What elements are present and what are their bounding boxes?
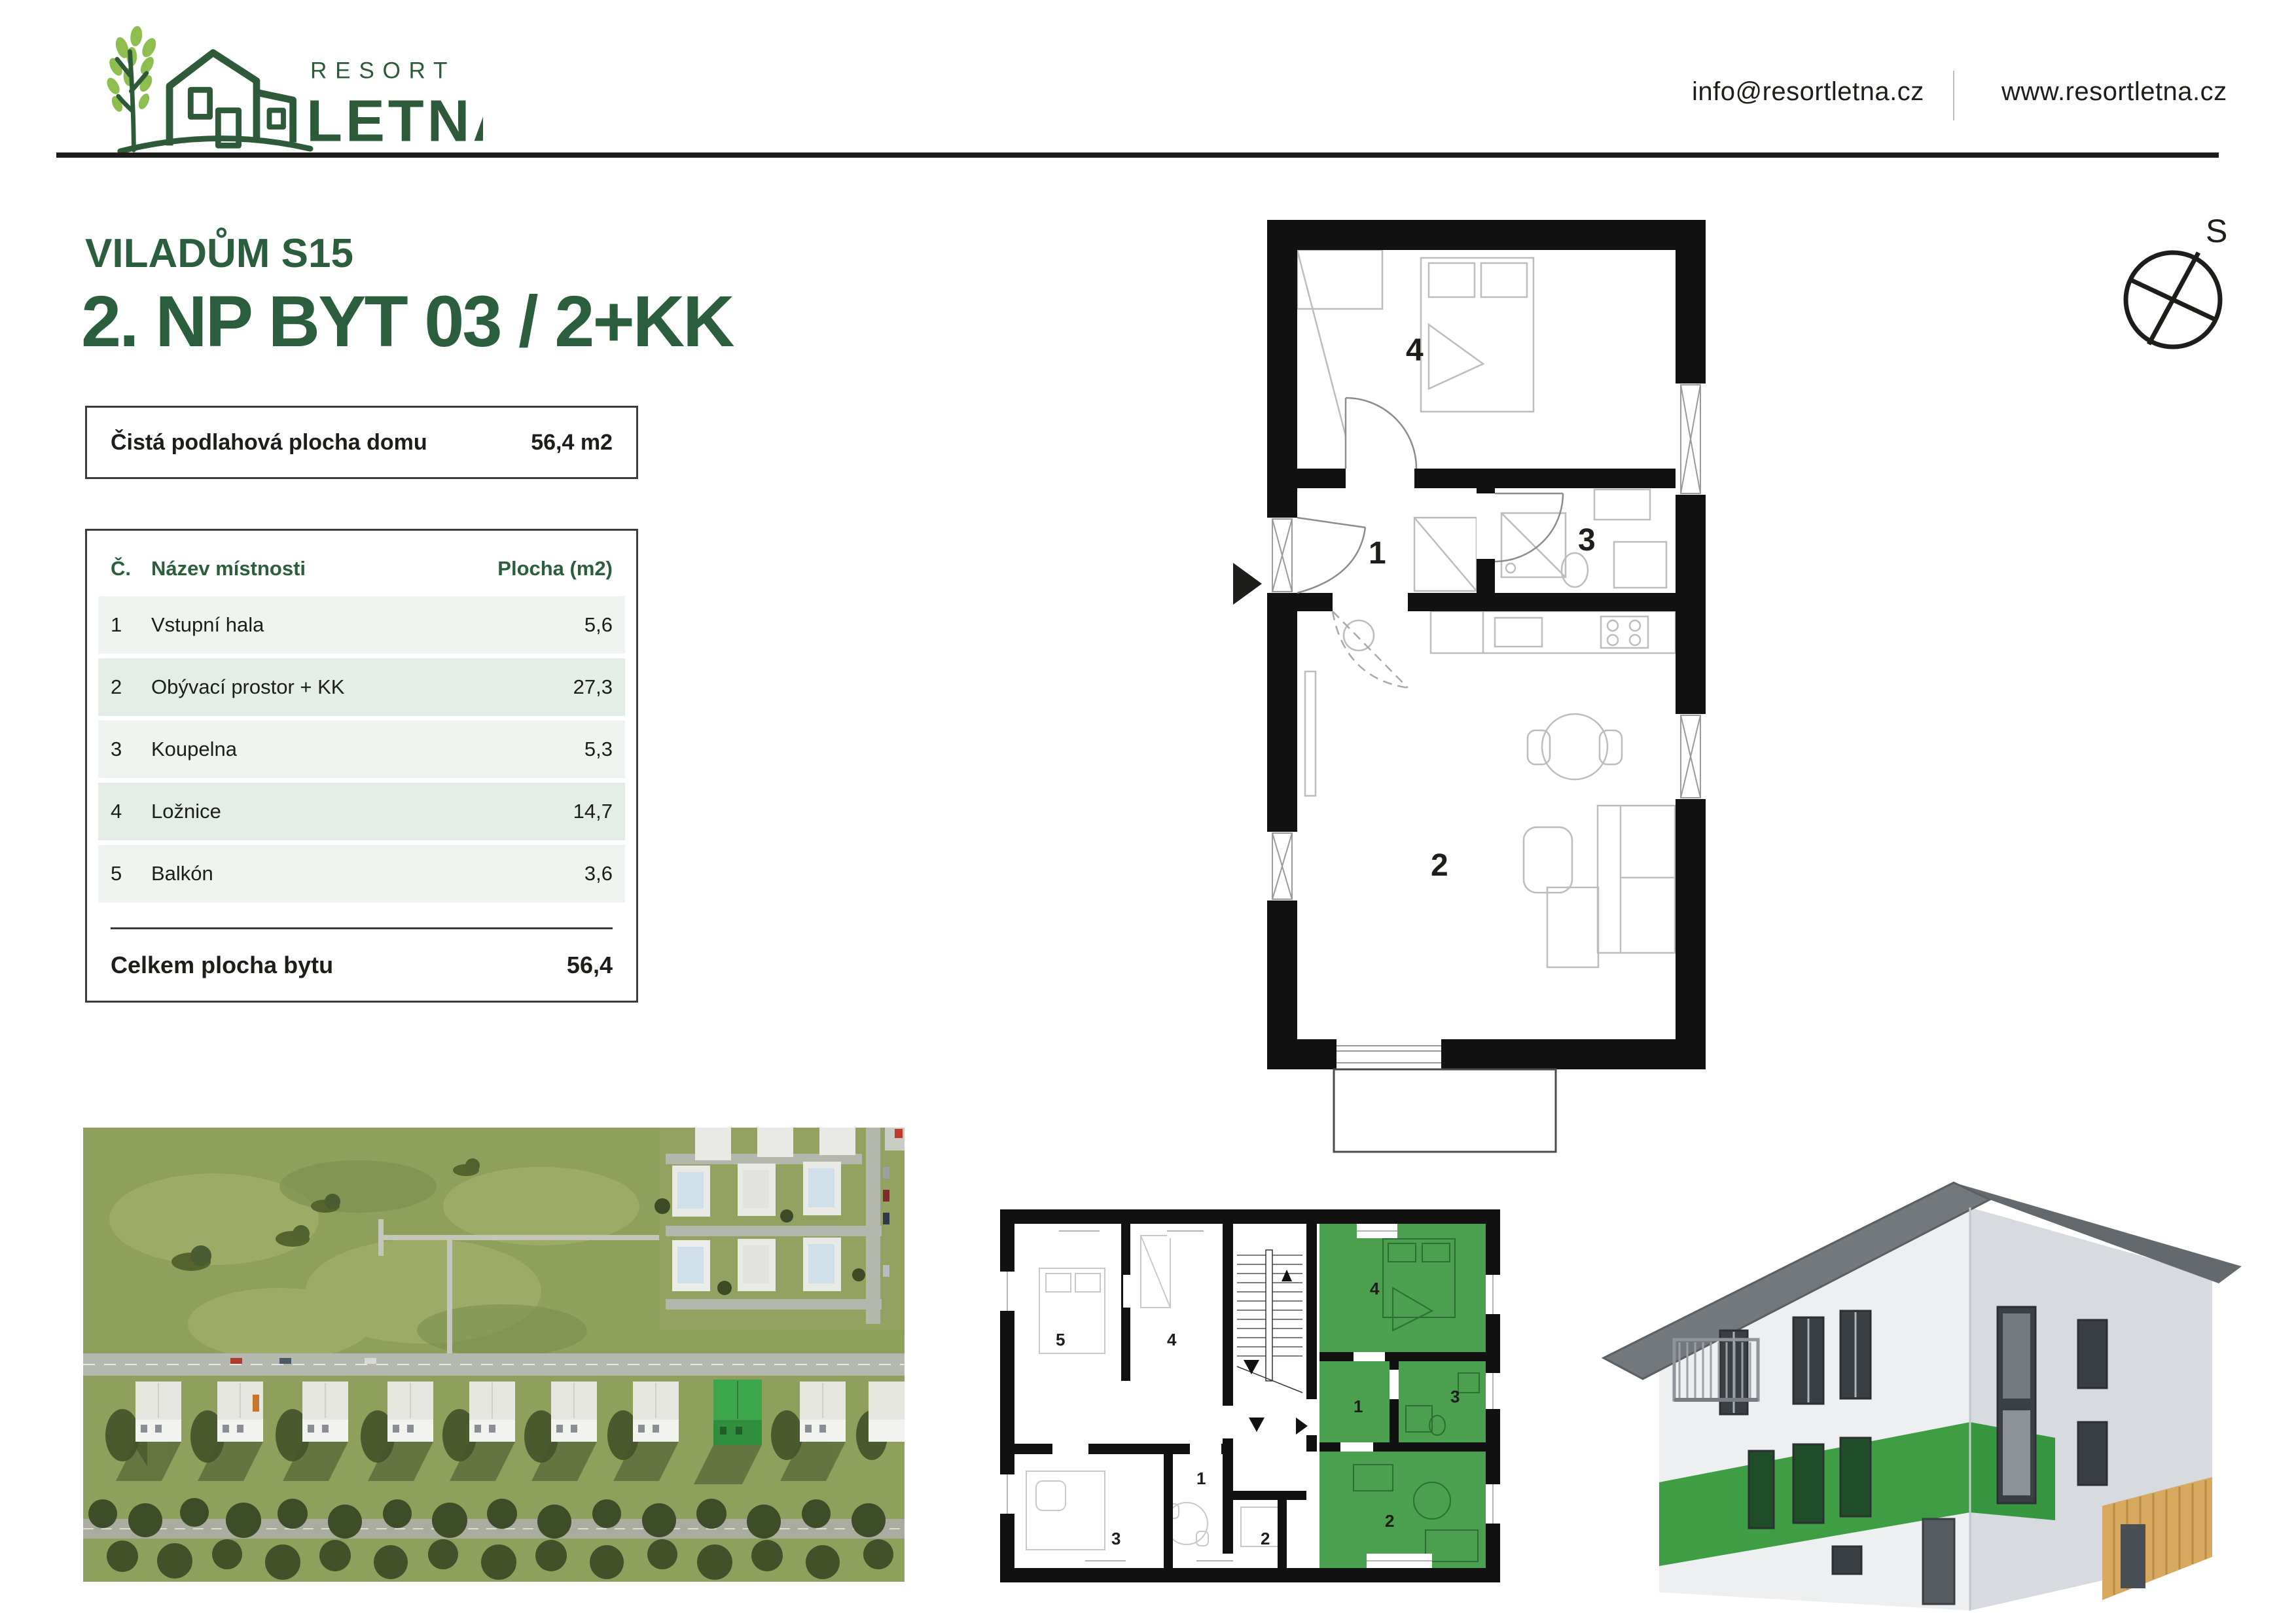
table-row: 3 Koupelna 5,3: [98, 721, 625, 778]
table-row: 4 Ložnice 14,7: [98, 783, 625, 840]
row-name: Ložnice: [151, 800, 573, 823]
overview-left-room2-label: 2: [1261, 1529, 1270, 1548]
overview-right-room4-label: 4: [1370, 1279, 1380, 1298]
row-name: Balkón: [151, 862, 584, 885]
table-row: 1 Vstupní hala 5,6: [98, 596, 625, 654]
table-row: 5 Balkón 3,6: [98, 845, 625, 902]
col-header-name: Název místnosti: [151, 557, 497, 580]
building-subtitle: VILADŮM S15: [85, 230, 353, 277]
row-area: 27,3: [573, 675, 613, 699]
room-area-table: Č. Název místnosti Plocha (m2) 1 Vstupní…: [85, 529, 638, 1003]
plan-room4-label: 4: [1406, 333, 1424, 368]
plan-room1-label: 1: [1369, 536, 1386, 571]
brand-word-resort: RESORT: [310, 58, 456, 84]
row-area: 5,6: [584, 613, 613, 637]
row-name: Obývací prostor + KK: [151, 675, 573, 699]
overview-right-room2-label: 2: [1385, 1511, 1394, 1531]
row-area: 5,3: [584, 738, 613, 761]
row-number: 3: [111, 738, 151, 761]
table-row: 2 Obývací prostor + KK 27,3: [98, 658, 625, 716]
contact-website-link[interactable]: www.resortletna.cz: [2001, 77, 2227, 107]
apartment-floor-plan: 4 1 3 2: [1267, 220, 1706, 1166]
page-title: 2. NP BYT 03 / 2+KK: [81, 280, 733, 363]
row-name: Vstupní hala: [151, 613, 584, 637]
plan-room3-label: 3: [1578, 523, 1596, 558]
entrance-arrow-icon: [1233, 563, 1262, 605]
net-floor-area-value: 56,4 m2: [531, 430, 613, 455]
compass-north-label: S: [2206, 213, 2227, 249]
floor-overview-plan: 5 4 1 3 2 4 1 3 2: [1000, 1209, 1500, 1582]
net-floor-area-label: Čistá podlahová plocha domu: [111, 430, 427, 455]
row-name: Koupelna: [151, 738, 584, 761]
row-area: 14,7: [573, 800, 613, 823]
resort-letna-logo: RESORT LETNÁ: [84, 14, 483, 155]
overview-right-room1-label: 1: [1354, 1397, 1363, 1416]
row-number: 2: [111, 675, 151, 699]
header-rule: [56, 152, 2219, 158]
overview-left-room4-label: 4: [1167, 1330, 1177, 1349]
total-area-value: 56,4: [567, 952, 613, 979]
contact-email-link[interactable]: info@resortletna.cz: [1692, 77, 1924, 107]
brand-word-letna: LETNÁ: [306, 88, 483, 154]
site-aerial-photo: [83, 1128, 905, 1582]
overview-left-room1-label: 1: [1196, 1469, 1206, 1488]
row-number: 1: [111, 613, 151, 637]
north-compass-icon: S: [2113, 208, 2289, 385]
row-number: 4: [111, 800, 151, 823]
building-render: [1597, 1142, 2296, 1623]
table-footer-row: Celkem plocha bytu 56,4: [87, 929, 636, 979]
overview-right-room3-label: 3: [1450, 1387, 1460, 1406]
overview-left-room5-label: 5: [1056, 1330, 1065, 1349]
highlighted-apartment-area: [1319, 1224, 1486, 1568]
logo-tree-icon: [104, 26, 158, 151]
contact-divider: [1953, 71, 1954, 120]
row-area: 3,6: [584, 862, 613, 885]
table-header-row: Č. Název místnosti Plocha (m2): [87, 531, 636, 580]
row-number: 5: [111, 862, 151, 885]
col-header-number: Č.: [111, 557, 151, 580]
plan-room2-label: 2: [1431, 848, 1448, 883]
net-floor-area-box: Čistá podlahová plocha domu 56,4 m2: [85, 406, 638, 479]
total-area-label: Celkem plocha bytu: [111, 952, 333, 979]
col-header-area: Plocha (m2): [497, 557, 613, 580]
overview-left-room3-label: 3: [1111, 1529, 1121, 1548]
highlighted-house: [713, 1380, 762, 1445]
